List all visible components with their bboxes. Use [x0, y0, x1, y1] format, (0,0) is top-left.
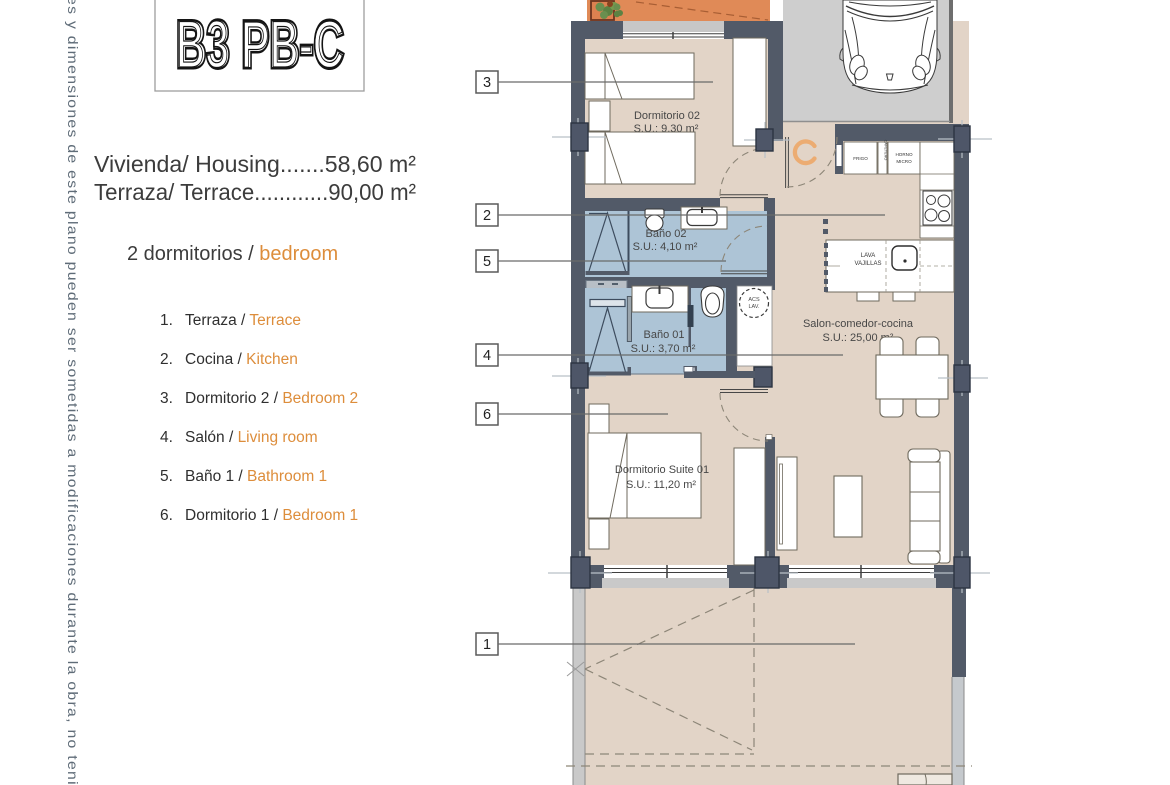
svg-text:Terraza/ Terrace............90: Terraza/ Terrace............90,00 m²	[94, 179, 416, 205]
svg-text:Dormitorio Suite 01: Dormitorio Suite 01	[615, 464, 709, 476]
svg-text:6.Dormitorio 1 / Bedroom 1: 6.Dormitorio 1 / Bedroom 1	[160, 507, 358, 524]
svg-text:6: 6	[483, 407, 491, 423]
svg-text:Baño 02: Baño 02	[646, 228, 687, 240]
svg-text:S.U.: 11,20 m²: S.U.: 11,20 m²	[626, 479, 696, 491]
svg-text:4: 4	[483, 348, 491, 364]
svg-text:ACS: ACS	[748, 297, 760, 303]
svg-text:3.Dormitorio 2 / Bedroom 2: 3.Dormitorio 2 / Bedroom 2	[160, 390, 358, 407]
svg-text:Vivienda/ Housing.......58,60: Vivienda/ Housing.......58,60 m²	[94, 151, 416, 177]
svg-text:2: 2	[483, 208, 491, 224]
svg-text:MICRO: MICRO	[896, 159, 912, 164]
svg-text:5.Baño 1 / Bathroom 1: 5.Baño 1 / Bathroom 1	[160, 468, 327, 485]
svg-text:FRIGO: FRIGO	[853, 156, 868, 161]
svg-text:S.U.: 3,70 m²: S.U.: 3,70 m²	[631, 343, 696, 355]
svg-text:Salon-comedor-cocina: Salon-comedor-cocina	[803, 318, 914, 330]
svg-text:LAV.: LAV.	[748, 304, 759, 310]
svg-text:Baño 01: Baño 01	[644, 329, 685, 341]
svg-text:2 dormitorios / bedroom: 2 dormitorios / bedroom	[127, 243, 338, 265]
svg-text:Dormitorio 02: Dormitorio 02	[634, 110, 700, 122]
svg-text:CAFETERO: CAFETERO	[884, 140, 888, 161]
svg-text:HORNO: HORNO	[895, 152, 913, 157]
svg-text:1: 1	[483, 637, 491, 653]
svg-text:es y dimensiones de este plano: es y dimensiones de este plano pueden se…	[65, 0, 80, 785]
svg-text:LAVA: LAVA	[861, 253, 875, 259]
svg-text:5: 5	[483, 254, 491, 270]
svg-text:VAJILLAS: VAJILLAS	[855, 261, 882, 267]
svg-text:B3 PB-C: B3 PB-C	[176, 7, 344, 81]
svg-text:S.U.: 4,10 m²: S.U.: 4,10 m²	[633, 241, 698, 253]
svg-text:3: 3	[483, 75, 491, 91]
